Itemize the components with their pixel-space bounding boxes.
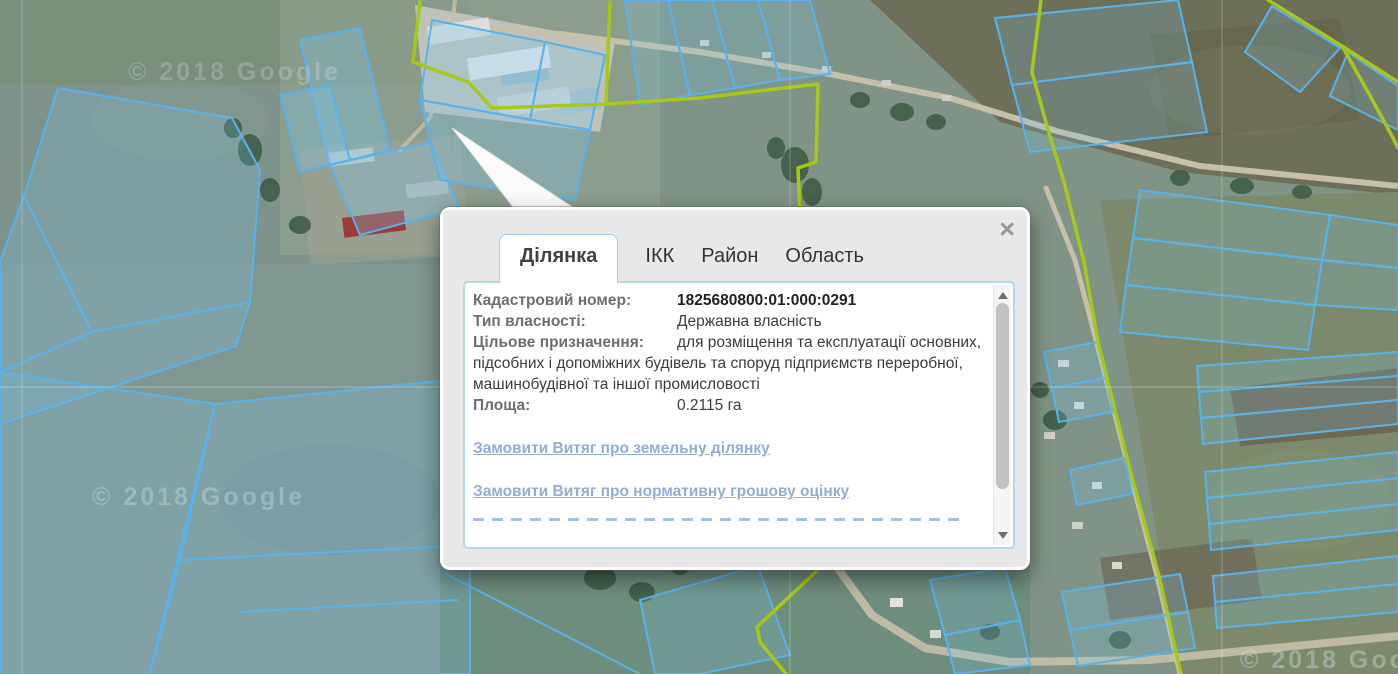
scroll-thumb[interactable] (996, 303, 1009, 489)
field-value: 1825680800:01:000:0291 (677, 292, 856, 309)
order-parcel-extract-link[interactable]: Замовити Витяг про земельну ділянку (473, 438, 990, 459)
field-label: Площа: (473, 395, 677, 416)
google-watermark: © 2018 Google (1240, 646, 1398, 674)
tab-dilyanka[interactable]: Ділянка (499, 234, 618, 283)
scroll-up-arrow[interactable] (994, 287, 1011, 303)
arrow-up-icon (998, 292, 1008, 299)
tab-oblast[interactable]: Область (785, 235, 864, 281)
parcel-info-popup: × Ділянка ІКК Район Область Кадастровий … (440, 207, 1030, 570)
google-watermark: © 2018 Google (128, 58, 341, 86)
clipped-link-text-tops (473, 518, 959, 521)
google-watermark: © 2018 Google (92, 483, 305, 511)
field-label: Тип власності: (473, 311, 677, 332)
tab-ikk[interactable]: ІКК (645, 235, 674, 281)
field-label: Цільове призначення: (473, 332, 677, 353)
field-label: Кадастровий номер: (473, 290, 677, 311)
parcel-details-panel: Кадастровий номер:1825680800:01:000:0291… (463, 281, 1015, 549)
field-designated-purpose: Цільове призначення:для розміщення та ек… (473, 332, 990, 395)
scroll-down-arrow[interactable] (994, 527, 1011, 543)
tab-bar: Ділянка ІКК Район Область (443, 210, 1027, 281)
field-value: Державна власність (677, 313, 822, 330)
arrow-down-icon (998, 532, 1008, 539)
partially-visible-link[interactable] (473, 518, 990, 524)
map-viewport[interactable]: © 2018 Google © 2018 Google © 2018 Googl… (0, 0, 1398, 674)
close-icon[interactable]: × (997, 214, 1017, 245)
scrollbar[interactable] (993, 285, 1011, 545)
parcel-details-scroll: Кадастровий номер:1825680800:01:000:0291… (465, 283, 992, 547)
field-ownership-type: Тип власності:Державна власність (473, 311, 990, 332)
order-monetary-valuation-extract-link[interactable]: Замовити Витяг про нормативну грошову оц… (473, 481, 990, 502)
field-area: Площа:0.2115 га (473, 395, 990, 416)
field-value: 0.2115 га (677, 397, 742, 414)
tab-rayon[interactable]: Район (701, 235, 758, 281)
field-cadastral-number: Кадастровий номер:1825680800:01:000:0291 (473, 290, 990, 311)
